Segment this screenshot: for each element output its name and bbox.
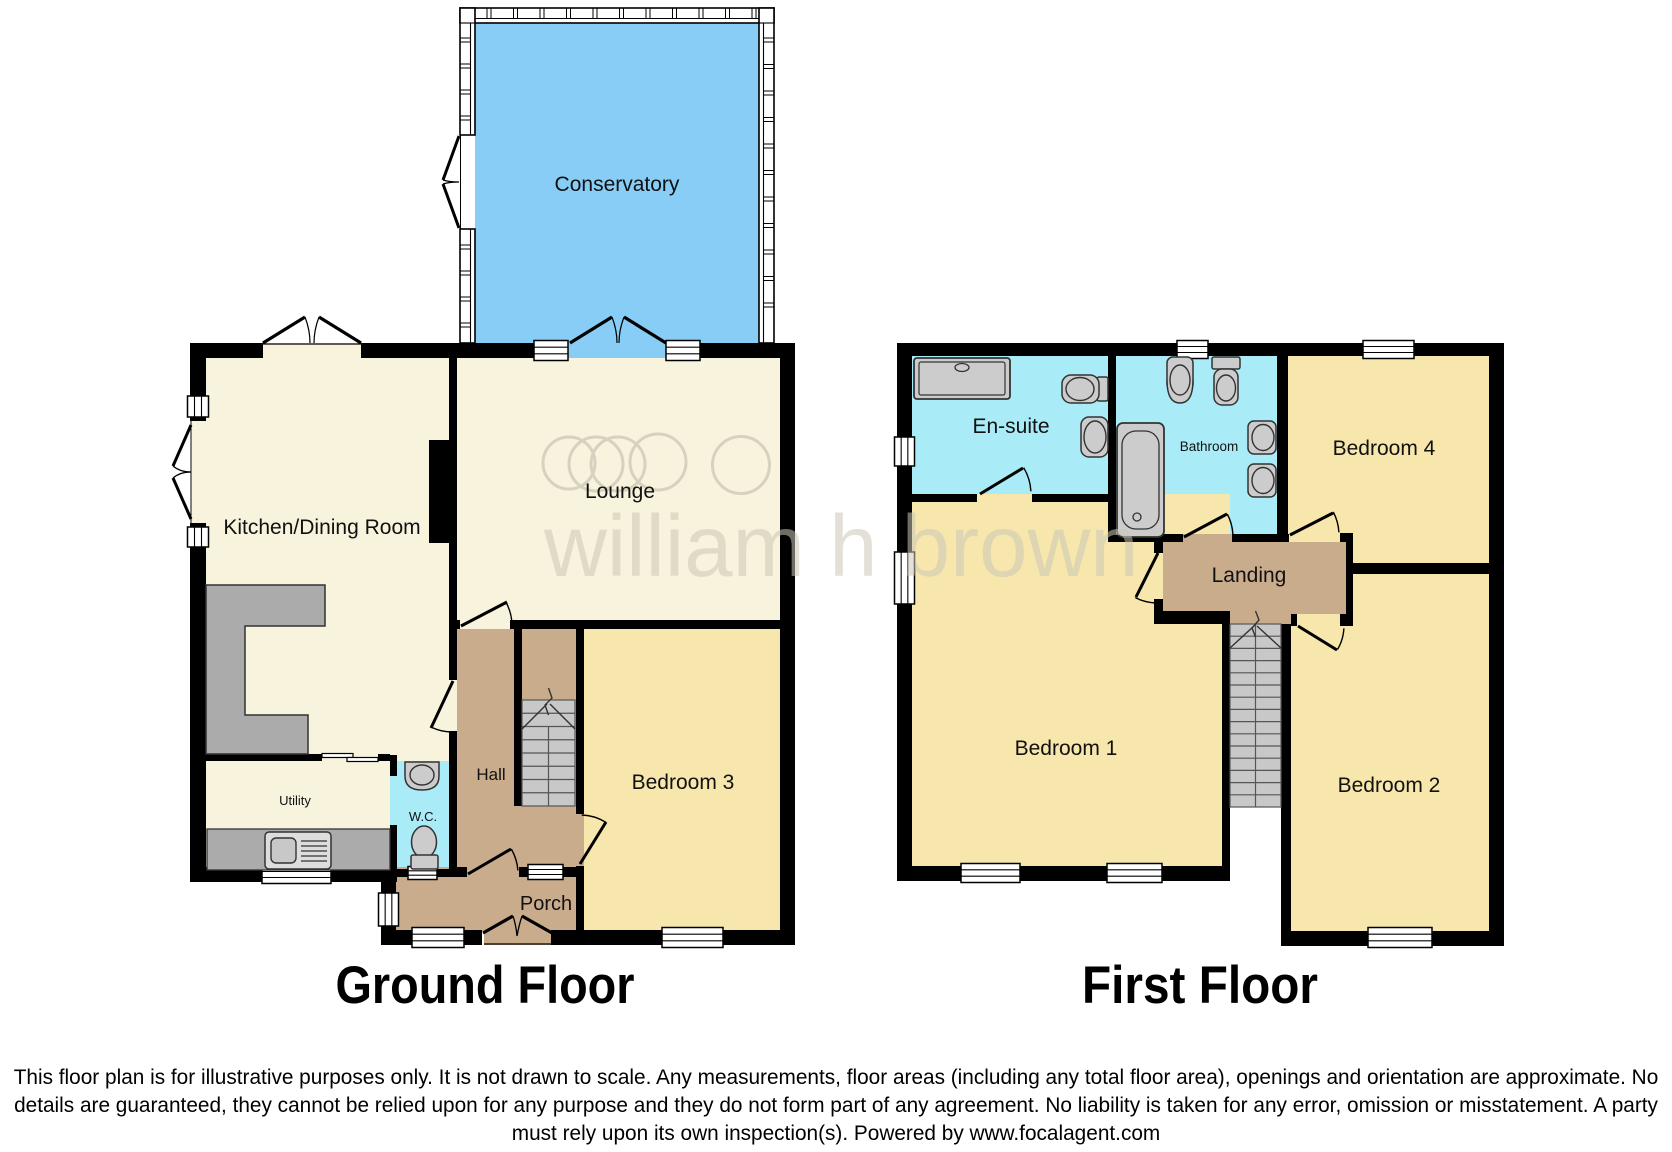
svg-text:william h brown: william h brown (543, 498, 1139, 595)
svg-text:First Floor: First Floor (1082, 956, 1318, 1015)
svg-text:Bathroom: Bathroom (1180, 439, 1239, 454)
svg-text:Porch: Porch (520, 893, 572, 915)
svg-text:Lounge: Lounge (585, 480, 655, 503)
svg-text:details are guaranteed, they c: details are guaranteed, they cannot be r… (14, 1094, 1658, 1117)
svg-text:Kitchen/Dining Room: Kitchen/Dining Room (223, 516, 420, 539)
svg-text:W.C.: W.C. (409, 809, 437, 824)
svg-text:Utility: Utility (279, 793, 311, 808)
svg-text:Bedroom 2: Bedroom 2 (1338, 774, 1441, 797)
svg-text:En-suite: En-suite (972, 415, 1049, 438)
svg-text:Ground Floor: Ground Floor (336, 956, 635, 1015)
svg-text:Conservatory: Conservatory (555, 173, 680, 196)
svg-text:This floor plan is for illustr: This floor plan is for illustrative purp… (14, 1066, 1659, 1089)
svg-text:must rely upon its own inspect: must rely upon its own inspection(s). Po… (512, 1122, 1160, 1145)
svg-text:Bedroom 3: Bedroom 3 (632, 771, 735, 794)
svg-text:Bedroom 1: Bedroom 1 (1015, 737, 1118, 760)
svg-text:Landing: Landing (1212, 564, 1287, 587)
svg-text:Hall: Hall (476, 765, 505, 784)
svg-text:Bedroom 4: Bedroom 4 (1333, 437, 1436, 460)
